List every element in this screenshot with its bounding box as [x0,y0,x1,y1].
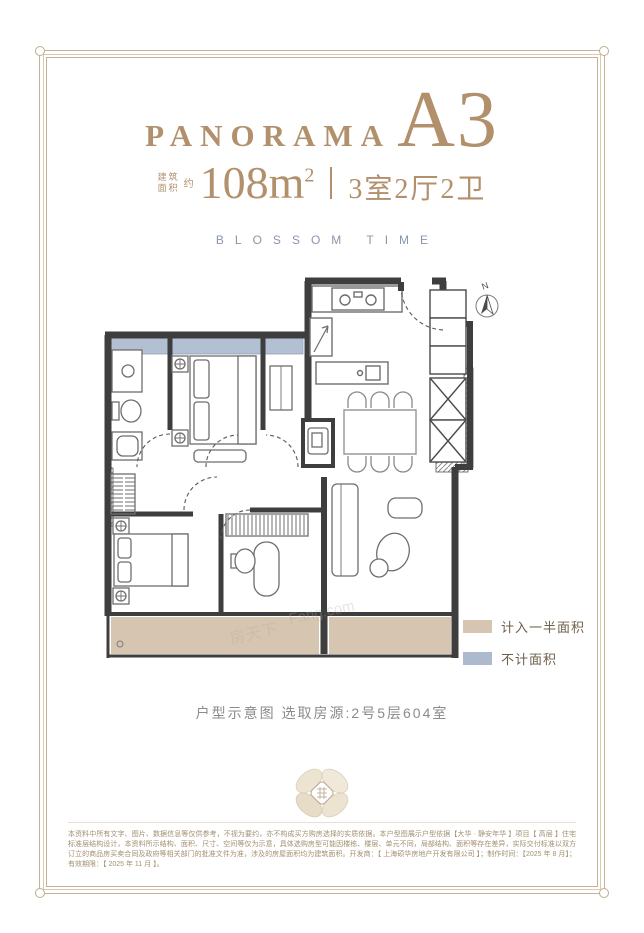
balcony [111,617,451,654]
area-value: 108m2 [200,156,315,209]
area-approx: 约 [184,175,194,190]
wc-niche [308,428,328,454]
corner-ornament [599,46,609,56]
legend-item-uncounted-area: 不计面积 [463,649,585,668]
subtitle: BLOSSOM TIME [0,233,644,247]
chair-icon [348,392,366,408]
chair-icon [371,392,389,408]
elevator-shaft [430,290,466,462]
chair-icon [348,456,366,472]
brand-title: PANORAMA [145,118,391,154]
closet-icon [111,474,135,514]
corner-ornament [35,888,45,898]
unit-name: A3 [397,78,499,162]
header: PANORAMA A3 建筑 面积 约 108m2 3室2厅2卫 BLOSSOM… [0,78,644,247]
kitchen [310,286,402,384]
living-room [332,484,422,577]
master-bedroom [111,474,188,604]
divider [330,167,332,199]
corner-ornament [599,888,609,898]
legend-swatch-tan [463,620,492,633]
legend: 计入一半面积 不计面积 [463,617,585,681]
coffee-table-icon [388,498,422,518]
area-label: 建筑 面积 [158,172,180,194]
bedroom-3 [270,366,292,410]
chair-icon [371,456,389,472]
flower-ornament [287,763,357,828]
dining-table-icon [344,410,416,454]
toilet-icon [112,402,119,420]
bench-icon [194,450,246,462]
disclaimer: 本资料中所有文字、图片、数据信息等仅供参考，不视为要约，亦不构成买方购房选择的实… [68,822,576,870]
chair-icon [394,392,412,408]
compass-icon: N [476,280,498,317]
room-layout: 3室2厅2卫 [348,167,486,207]
walls [105,281,470,658]
legend-swatch-blue [463,652,492,665]
chair-icon [394,456,412,472]
corner-ornament [35,46,45,56]
bathtub-icon [254,542,279,596]
structural-hatch [105,332,473,526]
floorplan: N 房天下 Fang.com [98,272,502,695]
dining-area [344,392,416,472]
floorplan-poster: PANORAMA A3 建筑 面积 约 108m2 3室2厅2卫 BLOSSOM… [0,0,644,933]
caption: 户型示意图 选取房源:2号5层604室 [0,703,644,723]
bathroom-1 [112,350,142,460]
svg-text:N: N [480,280,490,292]
legend-item-half-area: 计入一半面积 [463,617,585,636]
sofa-icon [332,484,358,576]
master-bathroom [226,514,308,596]
closet-icon [226,514,308,536]
floorplan-svg: N 房天下 Fang.com [98,272,502,690]
